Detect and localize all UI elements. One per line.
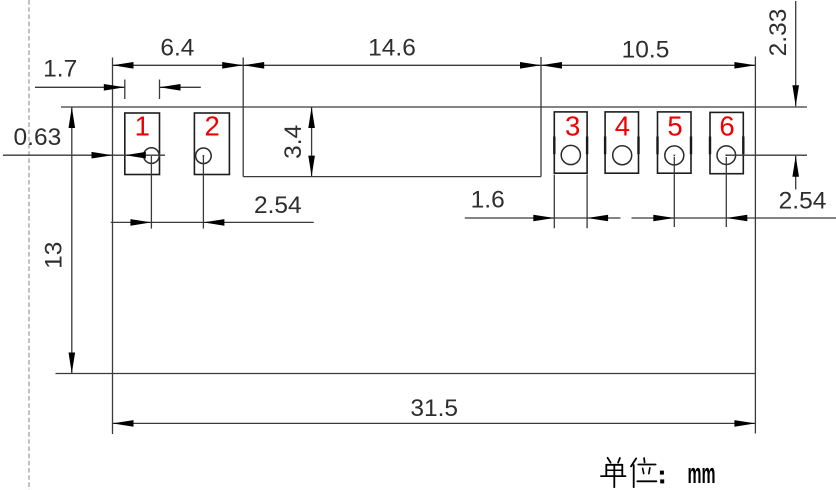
svg-text:4: 4	[615, 110, 630, 141]
svg-text:0.63: 0.63	[14, 124, 62, 151]
svg-text:1: 1	[135, 110, 150, 141]
svg-text:6.4: 6.4	[160, 35, 194, 62]
svg-text:13: 13	[40, 242, 67, 269]
svg-text:5: 5	[667, 110, 682, 141]
svg-text:14.6: 14.6	[368, 35, 416, 62]
svg-text:1.6: 1.6	[471, 187, 505, 214]
svg-text:2.33: 2.33	[765, 9, 792, 57]
svg-text:6: 6	[719, 110, 734, 141]
svg-text:3.4: 3.4	[280, 125, 307, 159]
svg-text:mm: mm	[688, 458, 716, 490]
svg-text:2.54: 2.54	[779, 188, 827, 215]
svg-text:3: 3	[565, 110, 580, 141]
svg-text:1.7: 1.7	[43, 55, 77, 82]
svg-text:2: 2	[204, 110, 219, 141]
svg-text:10.5: 10.5	[622, 37, 670, 64]
svg-text:31.5: 31.5	[410, 395, 458, 422]
svg-text:2.54: 2.54	[254, 192, 302, 219]
